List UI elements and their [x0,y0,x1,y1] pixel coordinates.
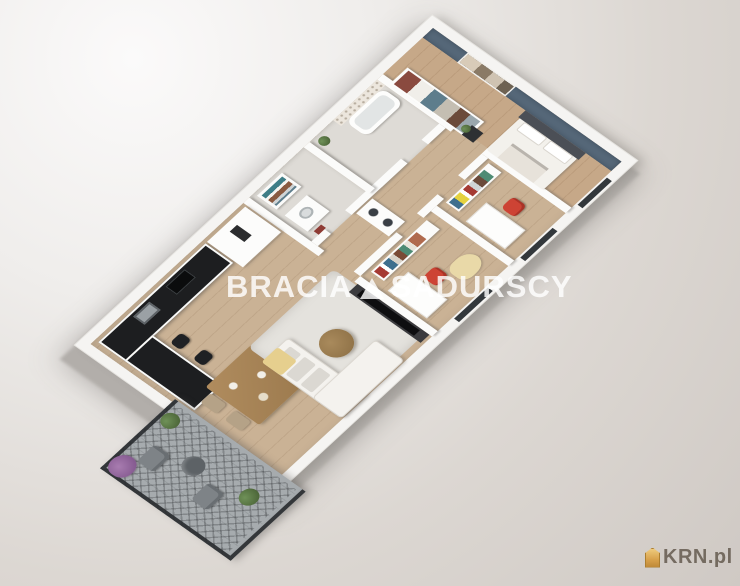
floorplan-render-canvas: BRACIA SADURSCY KRN.pl [0,0,740,586]
watermark: BRACIA SADURSCY [226,269,573,305]
vanity-basin [296,205,316,221]
watermark-triangle-icon [360,278,384,299]
krn-logo-text: KRN.pl [663,546,733,569]
krn-logo: KRN.pl [645,546,733,569]
watermark-text-left: BRACIA [226,269,353,305]
house-icon [645,548,660,568]
watermark-text-right: SADURSCY [391,269,573,305]
isometric-apartment [75,15,637,490]
